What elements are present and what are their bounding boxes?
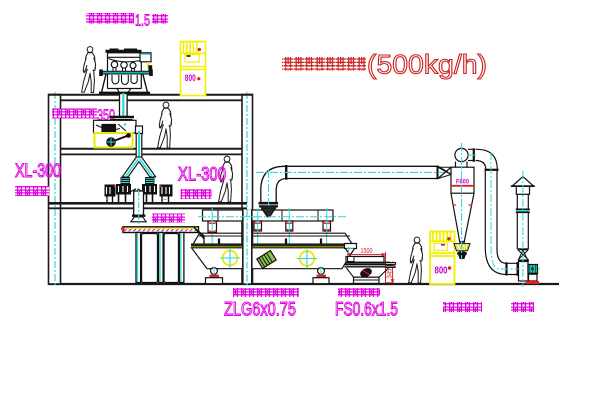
svg-text:ZLG6x0.75: ZLG6x0.75	[224, 300, 296, 321]
svg-text:XL-300: XL-300	[15, 161, 61, 182]
svg-text:345: 345	[387, 268, 394, 278]
svg-text:1.5: 1.5	[135, 13, 150, 30]
svg-text:1500: 1500	[361, 248, 373, 255]
svg-text:800: 800	[185, 73, 196, 84]
svg-text:FS0.6x1.5: FS0.6x1.5	[335, 300, 398, 321]
svg-text:(500kg/h): (500kg/h)	[367, 50, 487, 80]
svg-text:XL-300: XL-300	[178, 165, 226, 186]
svg-text:F600: F600	[456, 180, 470, 186]
svg-text:800: 800	[435, 265, 448, 277]
